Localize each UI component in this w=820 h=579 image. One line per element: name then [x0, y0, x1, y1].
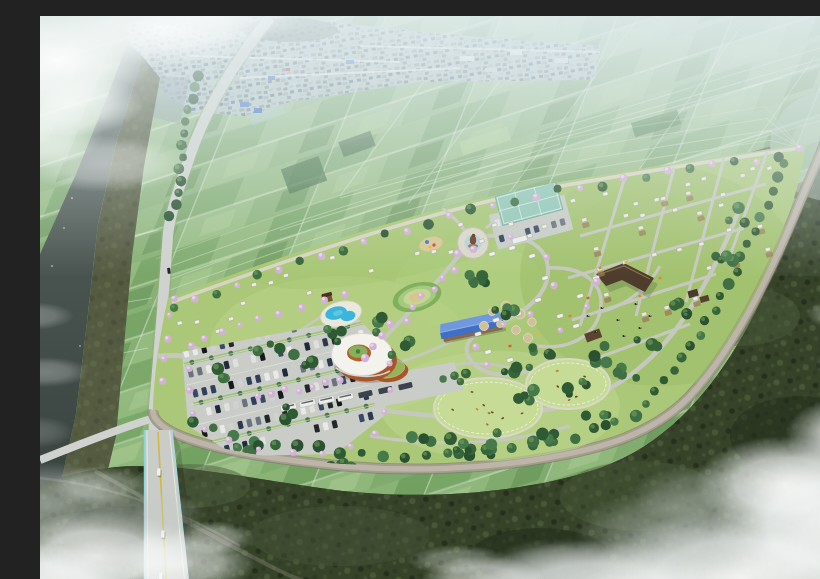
tree-highlight — [213, 291, 217, 295]
cherry-tree-icon — [432, 286, 438, 292]
cherry-tree-highlight — [220, 329, 223, 332]
evergreen-tree-icon — [209, 424, 218, 433]
tree-highlight — [340, 459, 345, 464]
cherry-tree-highlight — [256, 316, 259, 319]
cherry-tree-highlight — [165, 336, 168, 339]
evergreen-tree-icon — [478, 277, 486, 285]
tree-highlight — [314, 441, 320, 447]
cherry-tree-highlight — [387, 321, 390, 324]
cherry-tree-icon — [234, 283, 240, 289]
evergreen-tree-icon — [288, 349, 300, 361]
cherry-tree-icon — [501, 322, 506, 327]
cherry-tree-icon — [342, 290, 349, 297]
cow-patch — [640, 327, 641, 328]
evergreen-tree-icon — [610, 417, 618, 425]
evergreen-tree-icon — [670, 366, 679, 375]
cherry-tree-highlight — [160, 378, 163, 381]
tree-highlight — [529, 437, 535, 443]
tree-highlight — [635, 337, 638, 340]
tree-highlight — [697, 332, 701, 336]
cherry-tree-highlight — [373, 431, 376, 434]
evergreen-tree-icon — [501, 310, 512, 321]
cow — [648, 315, 651, 317]
tree-highlight — [302, 362, 306, 366]
evergreen-tree-icon — [501, 368, 508, 375]
tree-highlight — [335, 449, 340, 454]
evergreen-tree-icon — [336, 326, 347, 337]
cow-patch — [650, 315, 651, 316]
cherry-tree-highlight — [291, 450, 294, 453]
cherry-tree-icon — [387, 387, 393, 393]
evergreen-tree-icon — [712, 306, 721, 315]
tree-highlight — [527, 364, 530, 367]
cherry-tree-highlight — [311, 385, 314, 388]
cherry-tree-icon — [472, 343, 479, 350]
cherry-tree-highlight — [379, 333, 382, 336]
cherry-tree-icon — [256, 446, 261, 451]
tree-highlight — [686, 342, 690, 346]
evergreen-tree-icon — [377, 451, 389, 463]
cherry-tree-highlight — [187, 387, 190, 390]
cherry-tree-highlight — [370, 343, 373, 346]
evergreen-tree-icon — [491, 306, 499, 314]
cherry-tree-highlight — [192, 296, 195, 299]
tree-highlight — [446, 433, 452, 439]
evergreen-tree-icon — [288, 409, 299, 420]
cherry-tree-highlight — [594, 279, 597, 282]
cherry-tree-icon — [191, 295, 199, 303]
evergreen-tree-icon — [723, 278, 735, 290]
evergreen-tree-icon — [634, 336, 641, 343]
evergreen-tree-icon — [444, 432, 457, 445]
cherry-tree-highlight — [411, 305, 414, 308]
evergreen-tree-icon — [270, 439, 281, 450]
cherry-tree-highlight — [203, 427, 206, 430]
tree-highlight — [643, 401, 646, 404]
tree-highlight — [459, 439, 464, 444]
tree-highlight — [631, 411, 637, 417]
cherry-tree-highlight — [419, 293, 422, 296]
cherry-tree-icon — [201, 335, 208, 342]
cherry-tree-highlight — [238, 323, 240, 325]
tree-highlight — [281, 414, 287, 420]
evergreen-tree-icon — [700, 316, 709, 325]
cherry-tree-highlight — [473, 344, 476, 347]
cherry-tree-icon — [386, 320, 394, 328]
tree-highlight — [234, 444, 238, 448]
tree-highlight — [423, 452, 427, 456]
evergreen-tree-icon — [601, 420, 611, 430]
car-on-bridge — [157, 468, 161, 476]
evergreen-tree-icon — [170, 304, 178, 312]
evergreen-tree-icon — [527, 384, 540, 397]
evergreen-tree-icon — [716, 292, 724, 300]
cherry-tree-highlight — [257, 447, 259, 449]
tree-highlight — [717, 293, 721, 297]
cherry-tree-icon — [237, 322, 243, 328]
aerial-view: Aerial bird's-eye architectural renderin… — [40, 16, 820, 579]
evergreen-tree-icon — [601, 357, 613, 369]
cow — [616, 319, 619, 321]
evergreen-tree-icon — [253, 346, 264, 357]
evergreen-tree-icon — [528, 343, 537, 352]
evergreen-tree-icon — [579, 378, 587, 386]
tree-highlight — [307, 357, 313, 363]
cherry-tree-icon — [558, 327, 564, 333]
cow-patch — [596, 331, 597, 332]
evergreen-tree-icon — [581, 411, 591, 421]
cherry-tree-icon — [550, 282, 557, 289]
tree-highlight — [213, 364, 219, 370]
cherry-tree-highlight — [226, 437, 229, 440]
cherry-tree-highlight — [558, 328, 560, 330]
cherry-tree-highlight — [297, 389, 300, 392]
tree-highlight — [502, 311, 507, 316]
cherry-tree-highlight — [256, 393, 259, 396]
evergreen-tree-icon — [696, 331, 705, 340]
cherry-tree-highlight — [388, 388, 391, 391]
evergreen-tree-icon — [653, 342, 663, 352]
cherry-tree-highlight — [187, 366, 190, 369]
evergreen-tree-icon — [313, 440, 326, 453]
tree-highlight — [502, 369, 505, 372]
cherry-tree-highlight — [342, 291, 345, 294]
tree-highlight — [508, 444, 512, 448]
cow-patch — [602, 307, 603, 308]
evergreen-tree-icon — [450, 371, 459, 380]
cherry-tree-icon — [219, 328, 226, 335]
tree-highlight — [611, 418, 615, 422]
cherry-tree-icon — [361, 354, 369, 362]
cow — [634, 303, 637, 305]
cow-patch — [588, 315, 589, 316]
cow — [586, 315, 589, 317]
tree-highlight — [463, 370, 467, 374]
cherry-tree-highlight — [191, 412, 194, 415]
cow-patch — [618, 319, 619, 320]
cloud-puff — [406, 545, 510, 575]
evergreen-tree-icon — [400, 340, 411, 351]
cherry-tree-highlight — [348, 444, 351, 447]
evergreen-tree-icon — [301, 361, 309, 369]
tree-highlight — [684, 312, 688, 316]
evergreen-tree-icon — [570, 434, 580, 444]
tree-highlight — [293, 441, 299, 447]
evergreen-tree-icon — [457, 378, 464, 385]
cherry-tree-highlight — [337, 378, 340, 381]
evergreen-tree-icon — [358, 449, 366, 457]
tree-highlight — [580, 379, 583, 382]
cherry-tree-highlight — [189, 343, 192, 346]
tree-highlight — [444, 449, 448, 453]
evergreen-tree-icon — [409, 436, 416, 443]
tree-highlight — [373, 329, 377, 333]
circle-pad — [528, 318, 536, 326]
evergreen-tree-icon — [632, 374, 640, 382]
tree-highlight — [334, 339, 337, 342]
tree-highlight — [219, 374, 224, 379]
cloud-puff — [170, 521, 254, 555]
tree-highlight — [494, 429, 498, 433]
evergreen-tree-icon — [589, 423, 599, 433]
evergreen-tree-icon — [493, 428, 502, 437]
evergreen-tree-icon — [520, 392, 528, 400]
cherry-tree-highlight — [320, 451, 323, 454]
cherry-tree-highlight — [168, 313, 170, 315]
evergreen-tree-icon — [613, 368, 623, 378]
cow — [622, 335, 625, 337]
tree-highlight — [713, 307, 717, 311]
cherry-tree-icon — [167, 312, 172, 317]
tree-highlight — [492, 307, 495, 310]
evergreen-tree-icon — [418, 433, 429, 444]
cloud-puff — [50, 466, 150, 506]
tree-highlight — [600, 411, 604, 415]
tree-highlight — [647, 339, 653, 345]
evergreen-tree-icon — [465, 447, 472, 454]
cloud-puff — [630, 466, 770, 526]
evergreen-tree-icon — [588, 350, 600, 362]
cherry-tree-icon — [310, 385, 316, 391]
tree-highlight — [590, 424, 594, 428]
cherry-tree-highlight — [585, 304, 588, 307]
cherry-tree-highlight — [276, 311, 279, 314]
cherry-tree-highlight — [528, 312, 531, 315]
evergreen-tree-icon — [526, 364, 533, 371]
evergreen-tree-icon — [453, 446, 460, 453]
tree-highlight — [324, 326, 328, 330]
evergreen-tree-icon — [600, 341, 610, 351]
cow-patch — [636, 303, 637, 304]
tree-highlight — [454, 447, 457, 450]
evergreen-tree-icon — [334, 447, 346, 459]
cherry-tree-highlight — [432, 287, 435, 290]
cherry-tree-highlight — [405, 319, 408, 322]
cherry-tree-highlight — [202, 336, 205, 339]
tree-highlight — [670, 301, 675, 306]
evergreen-tree-icon — [274, 343, 285, 354]
cherry-tree-highlight — [362, 355, 366, 359]
evergreen-tree-icon — [547, 351, 556, 360]
cherry-tree-icon — [337, 377, 344, 384]
cow-patch — [624, 335, 625, 336]
tree-highlight — [171, 305, 175, 309]
evergreen-tree-icon — [400, 453, 410, 463]
atmospheric-haze-ne — [420, 16, 820, 276]
cherry-tree-highlight — [485, 362, 488, 365]
evergreen-tree-icon — [334, 338, 342, 346]
cherry-tree-icon — [593, 278, 601, 286]
evergreen-tree-icon — [439, 375, 446, 382]
tree-highlight — [458, 379, 461, 382]
cherry-tree-highlight — [388, 361, 391, 364]
cherry-tree-icon — [268, 391, 275, 398]
cherry-tree-highlight — [322, 297, 325, 300]
cherry-tree-icon — [584, 304, 590, 310]
evergreen-tree-icon — [660, 376, 668, 384]
tree-highlight — [678, 354, 683, 359]
evergreen-tree-icon — [218, 373, 228, 383]
cherry-tree-highlight — [269, 391, 272, 394]
cow — [600, 307, 603, 309]
cherry-tree-highlight — [382, 410, 385, 413]
evergreen-tree-icon — [485, 439, 497, 451]
cherry-tree-icon — [321, 296, 328, 303]
tree-highlight — [254, 347, 259, 352]
circle-pad — [512, 326, 521, 335]
cherry-tree-icon — [348, 443, 354, 449]
tree-highlight — [272, 441, 277, 446]
evergreen-tree-icon — [422, 451, 431, 460]
evergreen-tree-icon — [511, 362, 523, 374]
cherry-tree-highlight — [162, 356, 165, 359]
evergreen-tree-icon — [536, 428, 549, 441]
tree-highlight — [189, 417, 194, 422]
cherry-tree-highlight — [299, 305, 302, 308]
evergreen-tree-icon — [507, 443, 517, 453]
cherry-tree-icon — [190, 411, 196, 417]
tree-highlight — [283, 404, 286, 407]
cherry-tree-highlight — [235, 283, 238, 286]
courtyard-tree — [356, 349, 360, 353]
tree-highlight — [701, 317, 705, 321]
tree-highlight — [529, 385, 535, 391]
evergreen-tree-icon — [376, 312, 388, 324]
cherry-tree-highlight — [501, 323, 503, 325]
tree-highlight — [401, 454, 406, 459]
evergreen-tree-icon — [443, 449, 452, 458]
cherry-tree-highlight — [551, 283, 554, 286]
tree-highlight — [389, 352, 393, 356]
circle-pad — [479, 321, 488, 330]
tree-highlight — [451, 372, 455, 376]
evergreen-tree-icon — [267, 341, 274, 348]
cherry-tree-highlight — [323, 380, 326, 383]
tree-highlight — [651, 388, 655, 392]
aerial-rendering-figure: Aerial bird's-eye architectural renderin… — [40, 16, 820, 579]
cow — [594, 331, 597, 333]
cherry-tree-highlight — [282, 386, 285, 389]
cow — [638, 327, 641, 329]
evergreen-tree-icon — [599, 410, 608, 419]
evergreen-tree-icon — [187, 416, 199, 428]
circle-pad — [524, 334, 533, 343]
evergreen-tree-icon — [562, 382, 574, 394]
